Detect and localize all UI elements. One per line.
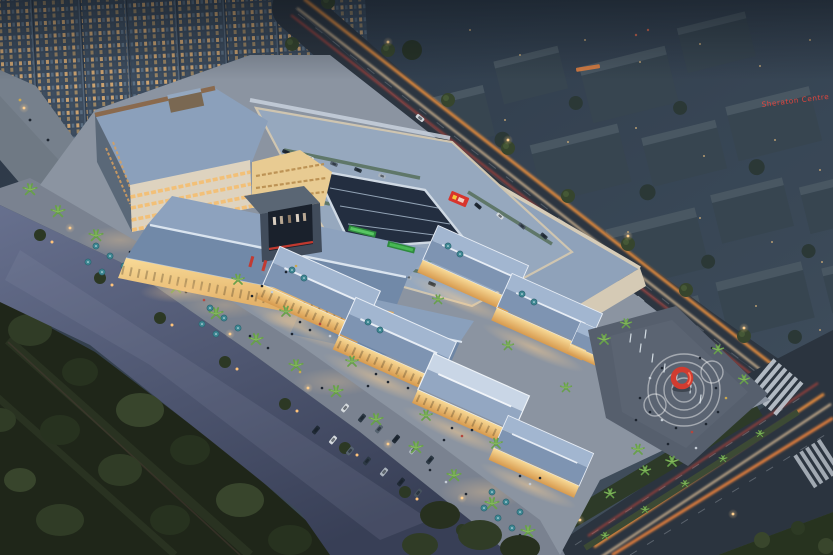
aerial-mall-rendering: Sheraton Centre — [0, 0, 833, 555]
street-lamp — [728, 509, 738, 519]
scene-canvas: Sheraton Centre — [0, 0, 833, 555]
top-vignette — [0, 0, 833, 80]
street-lamp — [19, 103, 29, 113]
